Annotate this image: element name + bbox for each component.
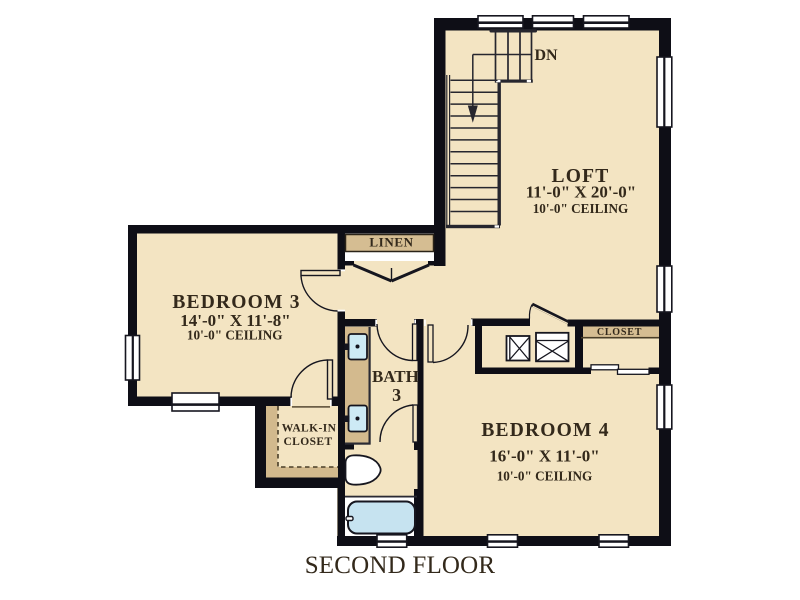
svg-text:BEDROOM 3: BEDROOM 3 <box>172 292 300 313</box>
svg-text:10'-0" CEILING: 10'-0" CEILING <box>533 201 629 216</box>
svg-text:10'-0" CEILING: 10'-0" CEILING <box>187 328 283 343</box>
svg-text:WALK-IN: WALK-IN <box>282 423 337 435</box>
svg-text:16'-0" X 11'-0": 16'-0" X 11'-0" <box>489 447 599 466</box>
svg-text:CLOSET: CLOSET <box>283 436 332 448</box>
svg-text:CLOSET: CLOSET <box>597 327 642 338</box>
svg-text:10'-0" CEILING: 10'-0" CEILING <box>497 469 593 484</box>
svg-text:SECOND FLOOR: SECOND FLOOR <box>305 552 496 579</box>
svg-text:11'-0" X 20'-0": 11'-0" X 20'-0" <box>526 183 636 202</box>
svg-text:3: 3 <box>392 385 401 405</box>
svg-text:BATH: BATH <box>372 367 419 386</box>
svg-text:BEDROOM 4: BEDROOM 4 <box>481 420 609 441</box>
svg-text:LINEN: LINEN <box>369 235 413 250</box>
svg-text:DN: DN <box>534 47 558 64</box>
